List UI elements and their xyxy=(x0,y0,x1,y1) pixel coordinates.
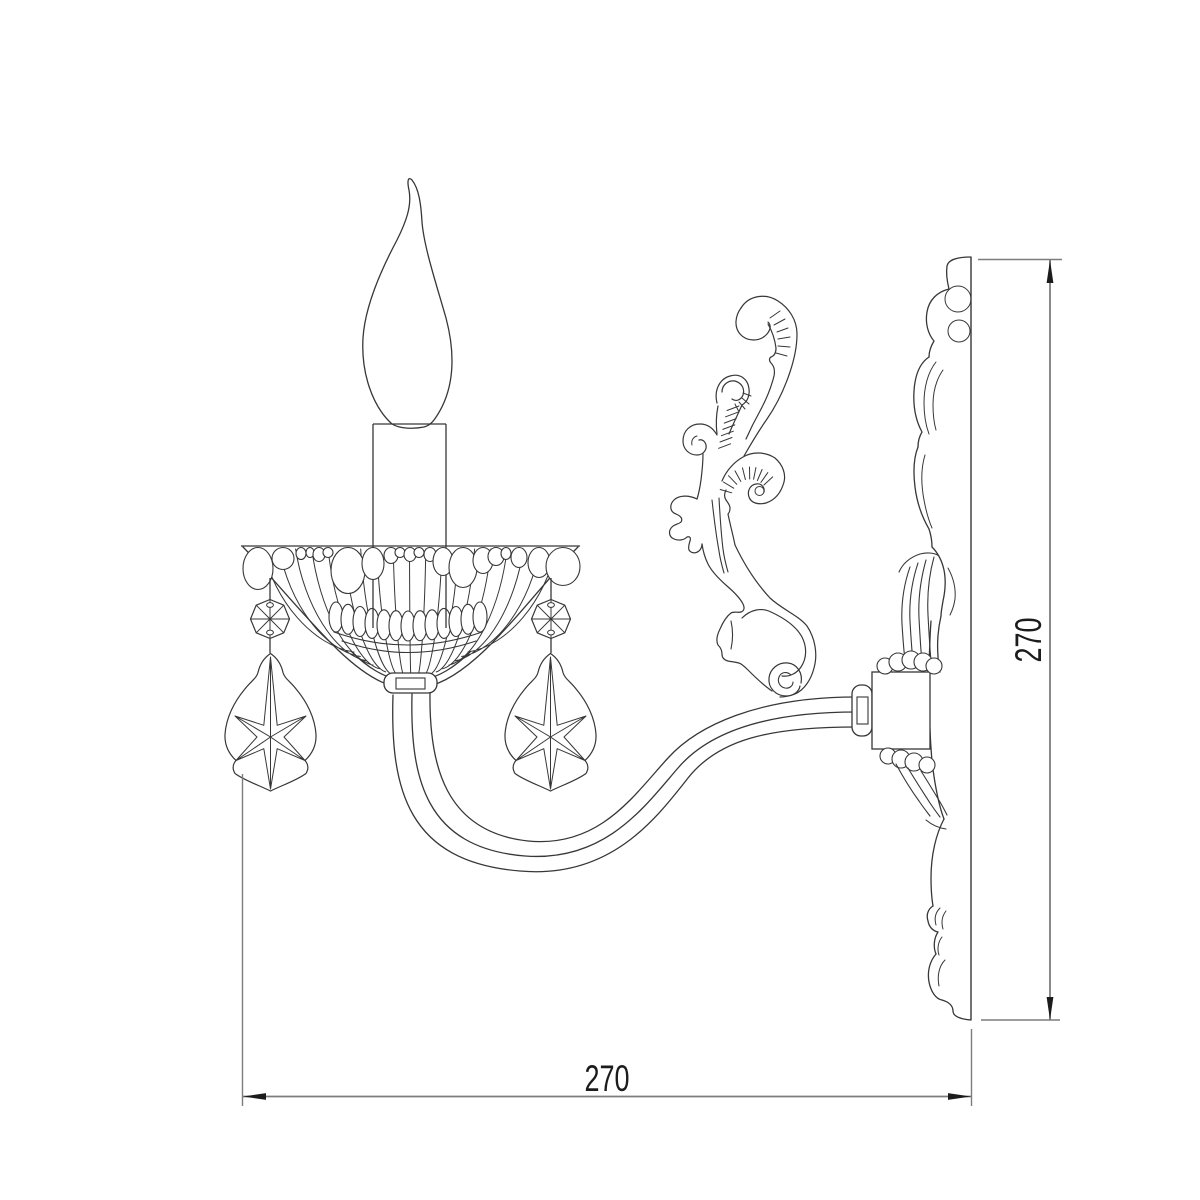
svg-text:270: 270 xyxy=(1008,617,1049,662)
svg-text:270: 270 xyxy=(584,1058,629,1099)
